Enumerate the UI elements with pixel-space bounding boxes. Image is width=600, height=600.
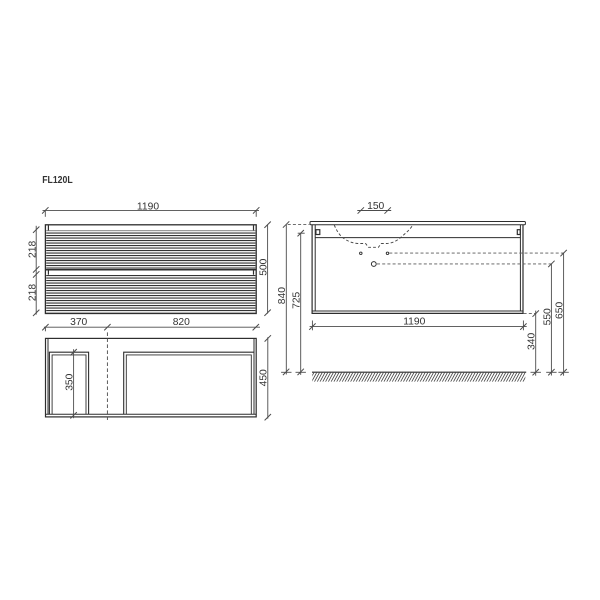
svg-text:1190: 1190 xyxy=(403,316,425,327)
svg-text:550: 550 xyxy=(542,308,553,325)
svg-text:370: 370 xyxy=(70,317,87,328)
svg-text:150: 150 xyxy=(367,201,384,212)
svg-text:218: 218 xyxy=(28,284,39,301)
svg-text:1190: 1190 xyxy=(137,202,159,213)
svg-text:820: 820 xyxy=(173,317,190,328)
svg-text:725: 725 xyxy=(292,291,303,308)
svg-text:840: 840 xyxy=(277,287,288,304)
svg-text:218: 218 xyxy=(28,241,39,258)
svg-text:650: 650 xyxy=(555,302,566,319)
svg-text:FL120L: FL120L xyxy=(42,174,73,186)
svg-text:340: 340 xyxy=(527,333,538,350)
svg-text:450: 450 xyxy=(259,369,270,386)
svg-text:500: 500 xyxy=(259,258,270,275)
svg-text:350: 350 xyxy=(65,373,76,390)
